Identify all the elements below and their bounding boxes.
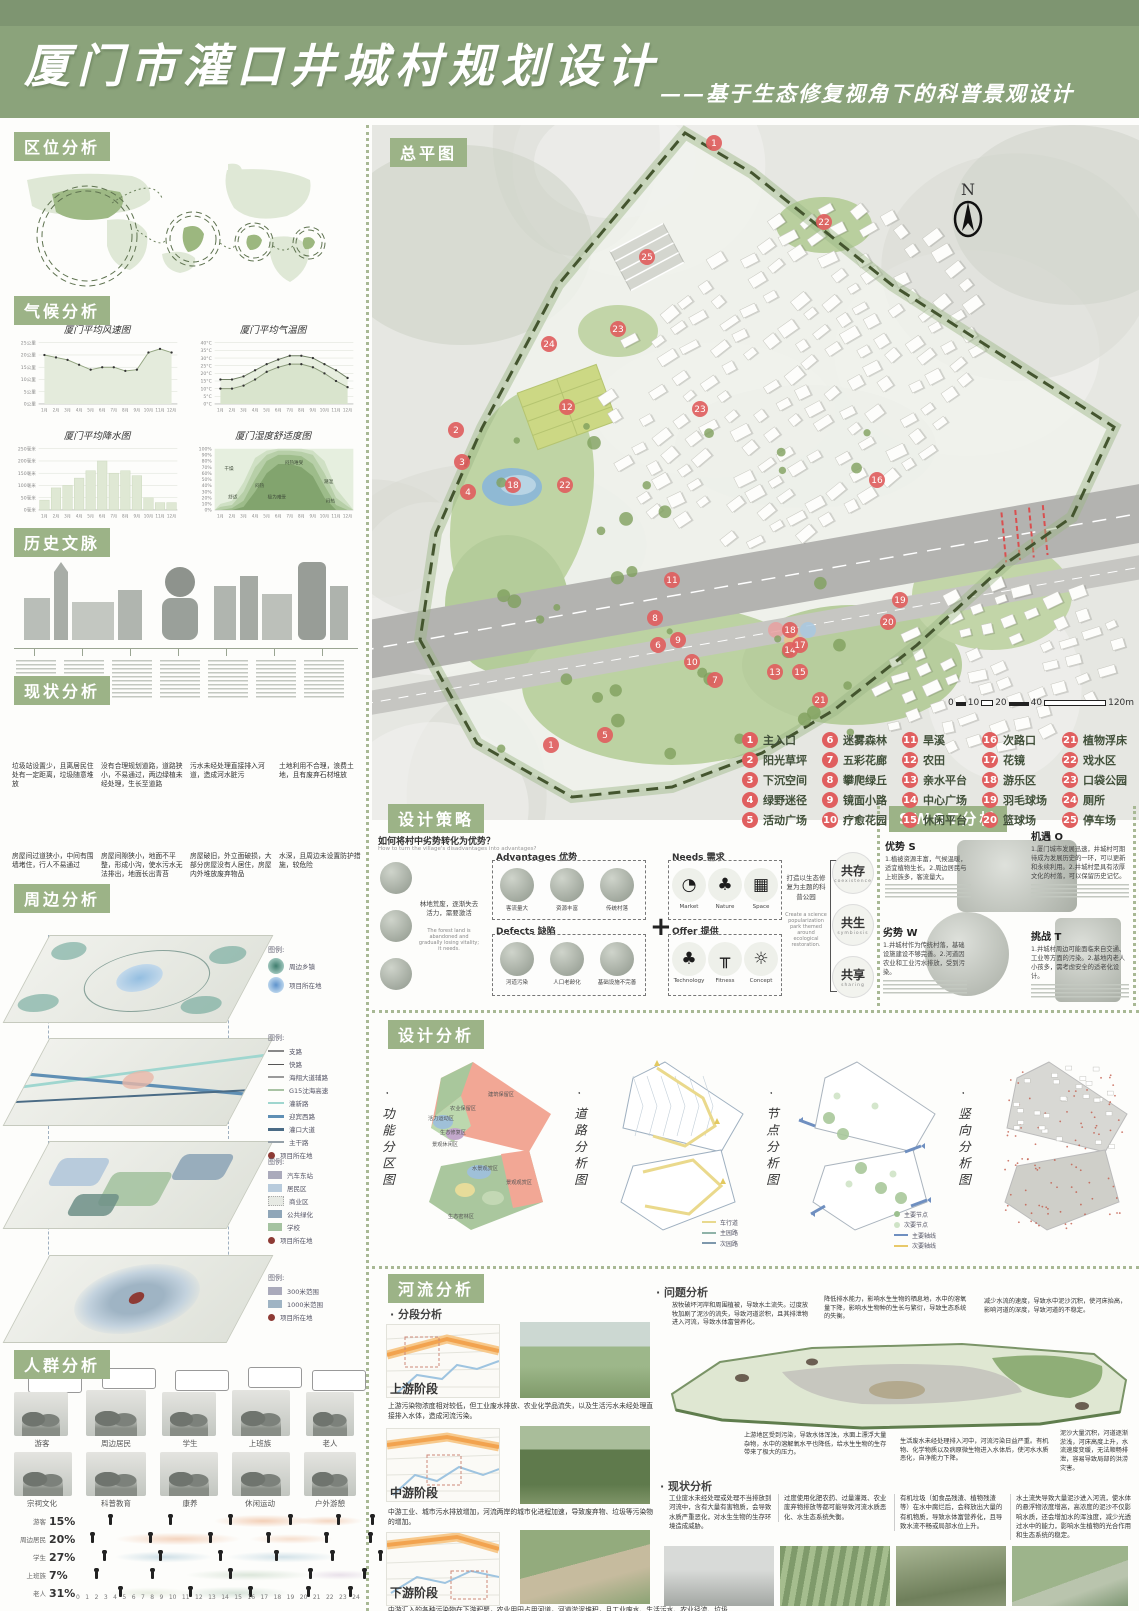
stage-caption-midstream: 中游工业、城市污水排放增加，河流两岸的城市化进程加速，导致废弃物、垃圾等污染物的…	[388, 1508, 656, 1528]
activity-time-strip	[79, 1513, 362, 1529]
portrait-figure	[165, 567, 195, 597]
person-icon	[309, 1571, 312, 1579]
legend-entry: 19 羽毛球场	[982, 792, 1056, 808]
advantage-photo	[600, 868, 634, 902]
road-line-icon	[702, 1221, 716, 1223]
svg-text:8月: 8月	[122, 408, 129, 413]
diagram-zoning: · 功能分区图 建筑保留区农业保留区活力运动区生态修复区景观休闲区生态密林区水景…	[378, 1056, 561, 1241]
hour-tick: 24	[352, 1594, 360, 1601]
legend-item: 项目所在地	[268, 1235, 360, 1245]
plan-marker: 13	[767, 664, 783, 680]
svg-text:9月: 9月	[134, 514, 141, 519]
svg-text:7: 7	[712, 676, 718, 686]
scale-bar: 0 10 20 40 120m	[948, 698, 1134, 708]
legend-number-badge: 12	[902, 752, 918, 768]
plan-marker: 22	[816, 214, 832, 230]
svg-text:7月: 7月	[110, 514, 117, 519]
legend-entry-label: 攀爬绿丘	[843, 772, 887, 788]
svg-text:22: 22	[818, 218, 829, 228]
offer-caption: Technology	[672, 978, 706, 984]
diagram-elevation-title: · 竖向分析图	[954, 1091, 973, 1241]
legend-entry-label: 疗愈花园	[843, 812, 887, 828]
svg-text:6: 6	[655, 641, 661, 651]
svg-text:1月: 1月	[217, 408, 224, 413]
svg-text:12月: 12月	[167, 514, 176, 519]
legend-number-badge: 22	[1062, 752, 1078, 768]
animal-icon	[1075, 1402, 1089, 1410]
diagram-roads: · 道路分析图	[570, 1056, 753, 1241]
legend-item: 次要轴线	[894, 1241, 936, 1250]
road-line-icon	[268, 1076, 284, 1078]
svg-text:9: 9	[675, 636, 681, 646]
defect-photo	[550, 942, 584, 976]
svg-text:30°C: 30°C	[200, 356, 211, 362]
swot-text-t: 1.井城村周边可能面临来自交通、工业等方面的污染。2.基地内老人小孩多，需考虑安…	[1031, 945, 1129, 982]
road-line-icon	[268, 1089, 284, 1091]
hour-tick: 22	[326, 1594, 334, 1601]
section-label-strategy: 设计策略	[388, 804, 484, 833]
stage-photo-downstream	[520, 1530, 650, 1604]
svg-text:50%: 50%	[202, 477, 213, 483]
group-label: 学生	[160, 1438, 220, 1449]
plan-marker: 20	[880, 614, 896, 630]
swot-strengths: 优势 S 1.植被资源丰富，气候温暖，适宜植物生长。2.周边居民与上班族多，客流…	[885, 838, 971, 898]
svg-text:10月: 10月	[320, 514, 329, 519]
scale-tick: 0	[948, 698, 954, 708]
strategy-block: 设计策略 如何将村中劣势转化为优势？ How to turn the villa…	[372, 800, 877, 1008]
status-text: 有机垃圾（如食品残渣、植物残渣等）在水中腐烂后，会释放出大量的有机物质，导致水体…	[894, 1494, 1004, 1531]
legend-number-badge: 16	[982, 732, 998, 748]
context-photo	[380, 862, 412, 894]
problem-annotation: 泥沙大量沉积，河道逐渐淤浅，河床高度上升，水流速度变缓，无法顺畅排泄，容易导致局…	[1060, 1430, 1134, 1473]
chart-humidity-plot: 0%10%20%30%40%50%60%70%80%90%100%1月2月3月4…	[188, 443, 358, 531]
status-photo-riverbank	[1012, 1546, 1128, 1606]
section-label-people: 人群分析	[14, 1350, 110, 1379]
activity-photo-ancestral	[14, 1452, 72, 1496]
legend-label: 300米范围	[287, 1286, 319, 1296]
site-photo-caption: 水深，且周边未设置防护措施，较危险	[279, 852, 362, 880]
page-title: 厦门市灌口井城村规划设计	[24, 30, 660, 96]
legend-label: 主要轴线	[912, 1231, 936, 1240]
activity-time-strip	[79, 1531, 362, 1547]
legend-entry-label: 阳光草坪	[763, 752, 807, 768]
zone-chip-icon	[268, 1210, 282, 1218]
plan-marker: 1	[543, 737, 559, 753]
svg-text:6月: 6月	[275, 514, 282, 519]
swot-en-text	[885, 884, 971, 898]
svg-text:5月: 5月	[263, 408, 270, 413]
legend-entry: 17 花镜	[982, 752, 1056, 768]
plan-marker: 2	[448, 422, 464, 438]
world-map	[12, 158, 360, 290]
svg-text:10°C: 10°C	[200, 386, 211, 392]
zone-chip-icon	[268, 1171, 282, 1179]
people-row-label: 学生	[10, 1552, 49, 1562]
activity-label: 康养	[160, 1498, 220, 1509]
legend-entry-label: 游乐区	[1003, 772, 1036, 788]
fitness-icon: ╥	[708, 942, 742, 976]
person-icon	[229, 1571, 232, 1579]
legend-entry: 4 绿野迷径	[742, 792, 816, 808]
legend-label: 居民区	[287, 1183, 307, 1193]
svg-text:1: 1	[548, 741, 554, 751]
site-photo-cell: 水深，且周边未设置防护措施，较危险	[279, 796, 362, 880]
legend-item: 300米范围	[268, 1286, 360, 1296]
svg-text:4月: 4月	[252, 408, 259, 413]
status-text: 过度使用化肥农药、过量灌溉、农业废弃物排放等都可能导致河流水质恶化、水生态系统失…	[778, 1494, 888, 1522]
site-photo-cell: 没有合理规划道路，道路狭小，不易通过，两边绿植未经处理，生长至道路	[101, 706, 184, 790]
legend-label: 迎宾西路	[289, 1111, 315, 1121]
timeline-text	[112, 660, 152, 700]
svg-text:11月: 11月	[331, 408, 340, 413]
svg-text:农业保留区: 农业保留区	[450, 1104, 476, 1112]
chart-rain: 厦门平均降水图 0毫米50毫米100毫米150毫米200毫米250毫米1月2月3…	[12, 428, 182, 530]
svg-text:20%: 20%	[202, 495, 213, 501]
plan-marker: 17	[792, 637, 808, 653]
person-icon	[229, 1517, 232, 1525]
person-icon	[91, 1535, 94, 1543]
legend-entry-label: 休闲平台	[923, 812, 967, 828]
timeline-text	[256, 660, 296, 700]
timeline-text	[160, 660, 200, 700]
surrounding-legend-4: 图例: 300米范围 1000米范围 项目所在地	[268, 1273, 360, 1325]
legend-item: 主要轴线	[894, 1231, 936, 1240]
activity-label: 宗祠文化	[12, 1498, 72, 1509]
legend-entry: 11 旱溪	[902, 732, 976, 748]
svg-text:200毫米: 200毫米	[18, 458, 36, 465]
scale-tick: 10	[968, 698, 979, 708]
legend-entry-label: 镜面小路	[843, 792, 887, 808]
history-montage	[14, 556, 358, 642]
swot-opportunities: 机遇 O 1.厦门城市发展迅速，井城村可期待成为发展历史的一环，可以更新和永续利…	[1031, 828, 1129, 898]
context-photo	[380, 958, 412, 990]
surrounding-block: 图例: 周边乡镇 项目所在地 图例: 支路 快路	[10, 905, 362, 1345]
legend-title: 图例:	[268, 1273, 360, 1283]
svg-text:9月: 9月	[134, 408, 141, 413]
plan-marker: 3	[454, 454, 470, 470]
swot-threats: 挑战 T 1.井城村周边可能面临来自交通、工业等方面的污染。2.基地内老人小孩多…	[1031, 928, 1129, 998]
site-photo-caption: 土地利用不合理，浪费土地，且有废弃石材堆放	[279, 762, 362, 790]
node-dot-icon	[894, 1222, 900, 1228]
swot-en-text	[1031, 884, 1129, 898]
section-label-surrounding: 周边分析	[14, 884, 110, 913]
site-photo	[101, 706, 184, 760]
svg-text:13: 13	[769, 668, 780, 678]
person-icon	[363, 1571, 366, 1579]
legend-item: 主要节点	[894, 1210, 936, 1219]
legend-entry: 20 篮球场	[982, 812, 1056, 828]
swot-title-w: 劣势 W	[883, 924, 967, 939]
svg-text:20: 20	[882, 618, 894, 628]
activity-photo-outdoor	[304, 1452, 356, 1496]
svg-text:2月: 2月	[53, 514, 60, 519]
legend-entry-label: 戏水区	[1083, 752, 1116, 768]
legend-label: 汽车东站	[287, 1170, 313, 1180]
svg-text:10月: 10月	[144, 514, 153, 519]
plan-marker: 7	[707, 672, 723, 688]
activity-photo-science	[86, 1452, 146, 1496]
plan-marker: 18	[782, 622, 798, 638]
scale-tick: 40	[1031, 698, 1042, 708]
plan-marker: 12	[559, 399, 575, 415]
plan-marker: 8	[647, 610, 663, 626]
strategy-core-en: Create a science popularization park the…	[784, 912, 828, 948]
person-icon	[331, 1553, 334, 1561]
legend-entry-label: 亲水平台	[923, 772, 967, 788]
section-label-river: 河流分析	[388, 1274, 484, 1303]
people-row-percent: 27%	[49, 1551, 79, 1564]
plan-marker: 1	[706, 135, 722, 151]
diagram-zoning-title: · 功能分区图	[378, 1091, 397, 1241]
people-row-percent: 7%	[49, 1569, 79, 1582]
road-line-icon	[702, 1232, 716, 1234]
legend-item: 车行道	[702, 1218, 738, 1227]
hour-tick: 5	[122, 1594, 126, 1601]
legend-item: 公共绿化	[268, 1209, 360, 1219]
status-photo-industry	[664, 1546, 774, 1606]
person-icon	[159, 1553, 162, 1561]
svg-text:7月: 7月	[286, 408, 293, 413]
chart-wind: 厦门平均风速图 0公里5公里10公里15公里20公里25公里1月2月3月4月5月…	[12, 322, 182, 424]
nodes-legend: 主要节点次要节点主要轴线次要轴线	[894, 1208, 936, 1252]
goal-sharing: 共享sharing	[832, 956, 874, 998]
swot-title-t: 挑战 T	[1031, 928, 1129, 943]
legend-number-badge: 17	[982, 752, 998, 768]
plan-marker: 22	[557, 477, 573, 493]
diagram-roads-map	[593, 1056, 753, 1241]
plan-marker: 25	[639, 249, 655, 265]
legend-title: 图例:	[268, 1033, 360, 1043]
legend-number-badge: 21	[1062, 732, 1078, 748]
stage-label-downstream: 下游阶段	[390, 1584, 438, 1601]
svg-text:0毫米: 0毫米	[24, 507, 36, 514]
hours-axis: 0123456789101112131415161718192021222324	[76, 1594, 360, 1601]
svg-text:10%: 10%	[202, 502, 213, 508]
svg-text:30%: 30%	[202, 489, 213, 495]
section-divider	[372, 1266, 1139, 1269]
legend-entry: 18 游乐区	[982, 772, 1056, 788]
svg-text:1: 1	[711, 139, 717, 149]
svg-text:35°C: 35°C	[200, 348, 211, 354]
speech-bubble	[102, 1368, 156, 1389]
svg-text:15公里: 15公里	[21, 365, 36, 371]
svg-text:5: 5	[602, 731, 608, 741]
legend-label: 快路	[289, 1059, 302, 1069]
defect-photo	[500, 942, 534, 976]
legend-entry-label: 次路口	[1003, 732, 1036, 748]
legend-item: 居民区	[268, 1183, 360, 1193]
chart-wind-plot: 0公里5公里10公里15公里20公里25公里1月2月3月4月5月6月7月8月9月…	[12, 337, 182, 425]
svg-text:8月: 8月	[298, 408, 305, 413]
legend-number-badge: 20	[982, 812, 998, 828]
legend-number-badge: 8	[822, 772, 838, 788]
svg-text:4月: 4月	[76, 408, 83, 413]
site-photo	[101, 796, 184, 850]
svg-text:4月: 4月	[252, 514, 259, 519]
legend-item: G15沈海高速	[268, 1085, 360, 1095]
legend-label: 主干路	[289, 1137, 309, 1147]
person-icon	[267, 1535, 270, 1543]
svg-text:0%: 0%	[205, 508, 213, 514]
site-photo	[279, 796, 362, 850]
page-subtitle: ——基于生态修复视角下的科普景观设计	[660, 78, 1074, 108]
hour-tick: 2	[95, 1594, 99, 1601]
legend-label: 公共绿化	[287, 1209, 313, 1219]
stage-caption-upstream: 上游污染物浓度相对较低，但工业废水排放、农业化学品流失，以及生活污水未经处理直接…	[388, 1402, 656, 1422]
legend-number-badge: 24	[1062, 792, 1078, 808]
svg-text:25公里: 25公里	[21, 340, 36, 346]
svg-text:50毫米: 50毫米	[21, 494, 36, 501]
people-row-percent: 15%	[49, 1515, 79, 1528]
group-photo-workers	[232, 1390, 290, 1436]
person-icon	[325, 1535, 328, 1543]
legend-number-badge: 11	[902, 732, 918, 748]
svg-text:11月: 11月	[331, 514, 340, 519]
site-dot-icon	[268, 1237, 275, 1244]
legend-label: 项目所在地	[280, 1312, 313, 1322]
header-top-strip	[0, 0, 1139, 26]
svg-text:2月: 2月	[229, 514, 236, 519]
person-icon	[149, 1535, 152, 1543]
swot-block: SWOT分析 优势 S 1.植被资源丰富，气候温暖，适宜植物生长。2.周边居民与…	[879, 800, 1133, 1008]
chart-rain-plot: 0毫米50毫米100毫米150毫米200毫米250毫米1月2月3月4月5月6月7…	[12, 443, 182, 531]
section-label-current: 现状分析	[14, 676, 110, 705]
legend-entry: 3 下沉空间	[742, 772, 816, 788]
section-label-location: 区位分析	[14, 132, 110, 161]
group-label: 周边居民	[86, 1438, 146, 1449]
swot-en-text	[883, 980, 967, 994]
diagram-nodes-title: · 节点分析图	[762, 1091, 781, 1241]
legend-entry-label: 绿野迷径	[763, 792, 807, 808]
plan-marker: 21	[812, 692, 828, 708]
svg-text:7月: 7月	[110, 408, 117, 413]
svg-text:12月: 12月	[343, 408, 352, 413]
svg-text:23: 23	[694, 405, 705, 415]
legend-entry: 7 五彩花廊	[822, 752, 896, 768]
svg-text:2: 2	[453, 426, 459, 436]
svg-text:景观观赏区: 景观观赏区	[506, 1178, 532, 1186]
legend-entry: 25 停车场	[1062, 812, 1136, 828]
masterplan-map: 1234567891011121314151617181920212222232…	[372, 125, 1139, 820]
chart-temp-plot: 0°C5°C10°C15°C20°C25°C30°C35°C40°C1月2月3月…	[188, 337, 358, 425]
status-text: 水土流失导致大量泥沙进入河流，使水体的悬浮物浓度增高，高浓度的泥沙不仅影响水质，…	[1010, 1494, 1134, 1540]
svg-text:生态修复区: 生态修复区	[440, 1128, 466, 1136]
advantage-caption: 资源丰富	[546, 904, 588, 912]
legend-item: 商业区	[268, 1196, 360, 1206]
legend-item: 灌新路	[268, 1098, 360, 1108]
svg-text:4: 4	[465, 488, 471, 498]
plan-marker: 18	[505, 477, 521, 493]
plan-marker: 23	[692, 401, 708, 417]
context-photo	[380, 910, 412, 942]
scale-tick: 20	[995, 698, 1006, 708]
legend-entry: 24 厕所	[1062, 792, 1136, 808]
hour-tick: 12	[195, 1594, 203, 1601]
legend-item: 周边乡镇	[268, 958, 360, 974]
stage-photo-upstream	[520, 1322, 650, 1398]
swot-weaknesses: 劣势 W 1.井城村作为传统村落，基础设施建设不够完善。2.河道因农业和工业污水…	[883, 924, 967, 994]
svg-text:10月: 10月	[144, 408, 153, 413]
legend-entry-label: 迷雾森林	[843, 732, 887, 748]
svg-text:1月: 1月	[217, 514, 224, 519]
hour-tick: 14	[221, 1594, 229, 1601]
svg-text:8月: 8月	[122, 514, 129, 519]
legend-entry-label: 植物浮床	[1083, 732, 1127, 748]
activity-time-strip	[79, 1549, 362, 1565]
hour-tick: 19	[287, 1594, 295, 1601]
svg-text:22: 22	[559, 481, 570, 491]
hour-tick: 18	[274, 1594, 282, 1601]
site-photo-caption: 房屋间过道狭小，中间有围墙堵住，行人不易通过	[12, 852, 95, 880]
chart-rain-title: 厦门平均降水图	[12, 428, 182, 442]
activity-label: 休闲运动	[230, 1498, 290, 1509]
site-photo	[12, 796, 95, 850]
svg-text:40°C: 40°C	[200, 340, 211, 346]
person-icon	[275, 1553, 278, 1561]
zone-chip-icon	[268, 1223, 282, 1231]
person-icon	[209, 1535, 212, 1543]
svg-text:生态密林区: 生态密林区	[448, 1212, 474, 1220]
design-block: 设计分析 · 功能分区图 建筑保留区农业保留区活力运动区生态修复区景观休闲区生态…	[372, 1016, 1139, 1264]
person-icon	[289, 1517, 292, 1525]
site-photo	[12, 706, 95, 760]
defect-photo	[600, 942, 634, 976]
legend-title: 图例:	[268, 1157, 360, 1167]
people-row-label: 游客	[10, 1516, 49, 1526]
legend-entry-label: 口袋公园	[1083, 772, 1127, 788]
site-photo-cell: 房屋间隙狭小，地面不平整，形成小沟，使水污水无法排出，地面长出青苔	[101, 796, 184, 880]
svg-text:8月: 8月	[298, 514, 305, 519]
road-line-icon	[268, 1115, 284, 1118]
svg-text:80%: 80%	[202, 459, 213, 465]
township-blob-icon	[268, 958, 284, 974]
svg-text:70%: 70%	[202, 465, 213, 471]
hour-tick: 23	[339, 1594, 347, 1601]
site-photo-caption: 垃圾站设置少，且离居民住处有一定距离，垃圾随意堆放	[12, 762, 95, 790]
cow-icon	[806, 1359, 818, 1366]
chart-humidity: 厦门湿度舒适度图 0%10%20%30%40%50%60%70%80%90%10…	[188, 428, 358, 530]
legend-number-badge: 4	[742, 792, 758, 808]
strategy-core: 打造以生态修复为主题的科普公园	[784, 874, 828, 902]
svg-text:6月: 6月	[99, 408, 106, 413]
needs-caption: Market	[672, 904, 706, 910]
status-photo-village	[896, 1546, 1006, 1606]
legend-label: 项目所在地	[289, 980, 322, 990]
site-photo-caption: 房屋破旧，外立面破损，大部分房屋没有人居住，房屋内外堆放废弃物品	[190, 852, 273, 880]
legend-number-badge: 23	[1062, 772, 1078, 788]
problem-analysis-title: · 问题分析	[656, 1284, 708, 1300]
people-row-label: 老人	[10, 1588, 49, 1598]
group-label: 上班族	[230, 1438, 290, 1449]
legend-item: 学校	[268, 1222, 360, 1232]
site-photo-cell: 房屋间过道狭小，中间有围墙堵住，行人不易通过	[12, 796, 95, 880]
legend-label: 灌新路	[289, 1098, 309, 1108]
legend-item: 主园路	[702, 1228, 738, 1237]
legend-number-badge: 15	[902, 812, 918, 828]
legend-item: 项目所在地	[268, 977, 360, 993]
legend-item: 灌口大道	[268, 1124, 360, 1134]
map-layer-townships	[3, 935, 274, 1023]
svg-text:3月: 3月	[240, 514, 247, 519]
status-analysis-title: · 现状分析	[660, 1478, 712, 1494]
legend-label: 学校	[287, 1222, 300, 1232]
defect-caption: 河道污染	[496, 978, 538, 986]
plan-marker: 23	[610, 321, 626, 337]
legend-entry: 16 次路口	[982, 732, 1056, 748]
problem-annotation: 降低排水能力，影响水生生物的栖息地，水中的溶氧量下降，影响水生物种的生长与繁衍，…	[824, 1296, 972, 1322]
legend-entry: 21 植物浮床	[1062, 732, 1136, 748]
node-dot-icon	[894, 1211, 900, 1217]
